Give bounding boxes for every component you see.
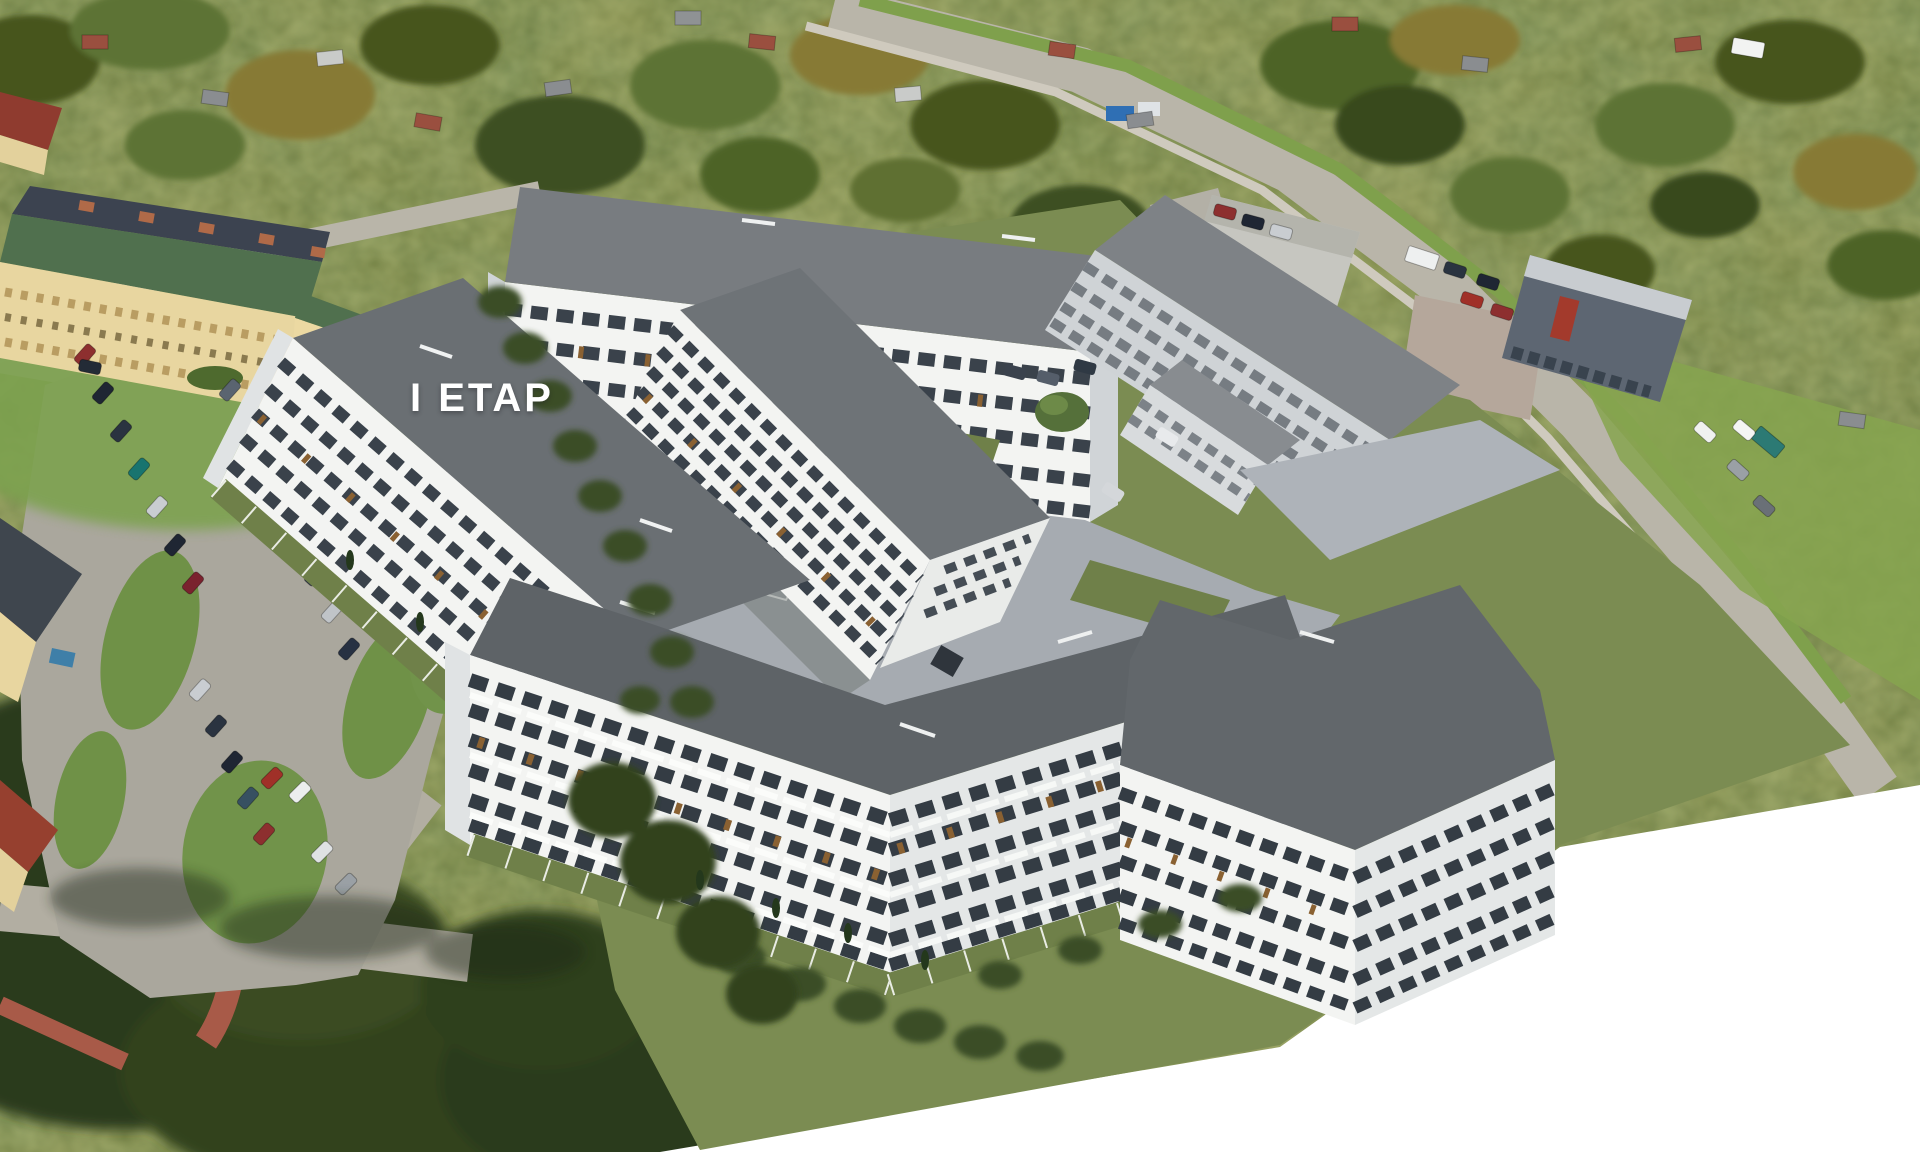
building-right-slab: [1120, 585, 1555, 1025]
aerial-visualization: I ETAP: [0, 0, 1920, 1152]
aerial-composite-image: [0, 0, 1920, 1152]
phase-label: I ETAP: [410, 376, 554, 421]
